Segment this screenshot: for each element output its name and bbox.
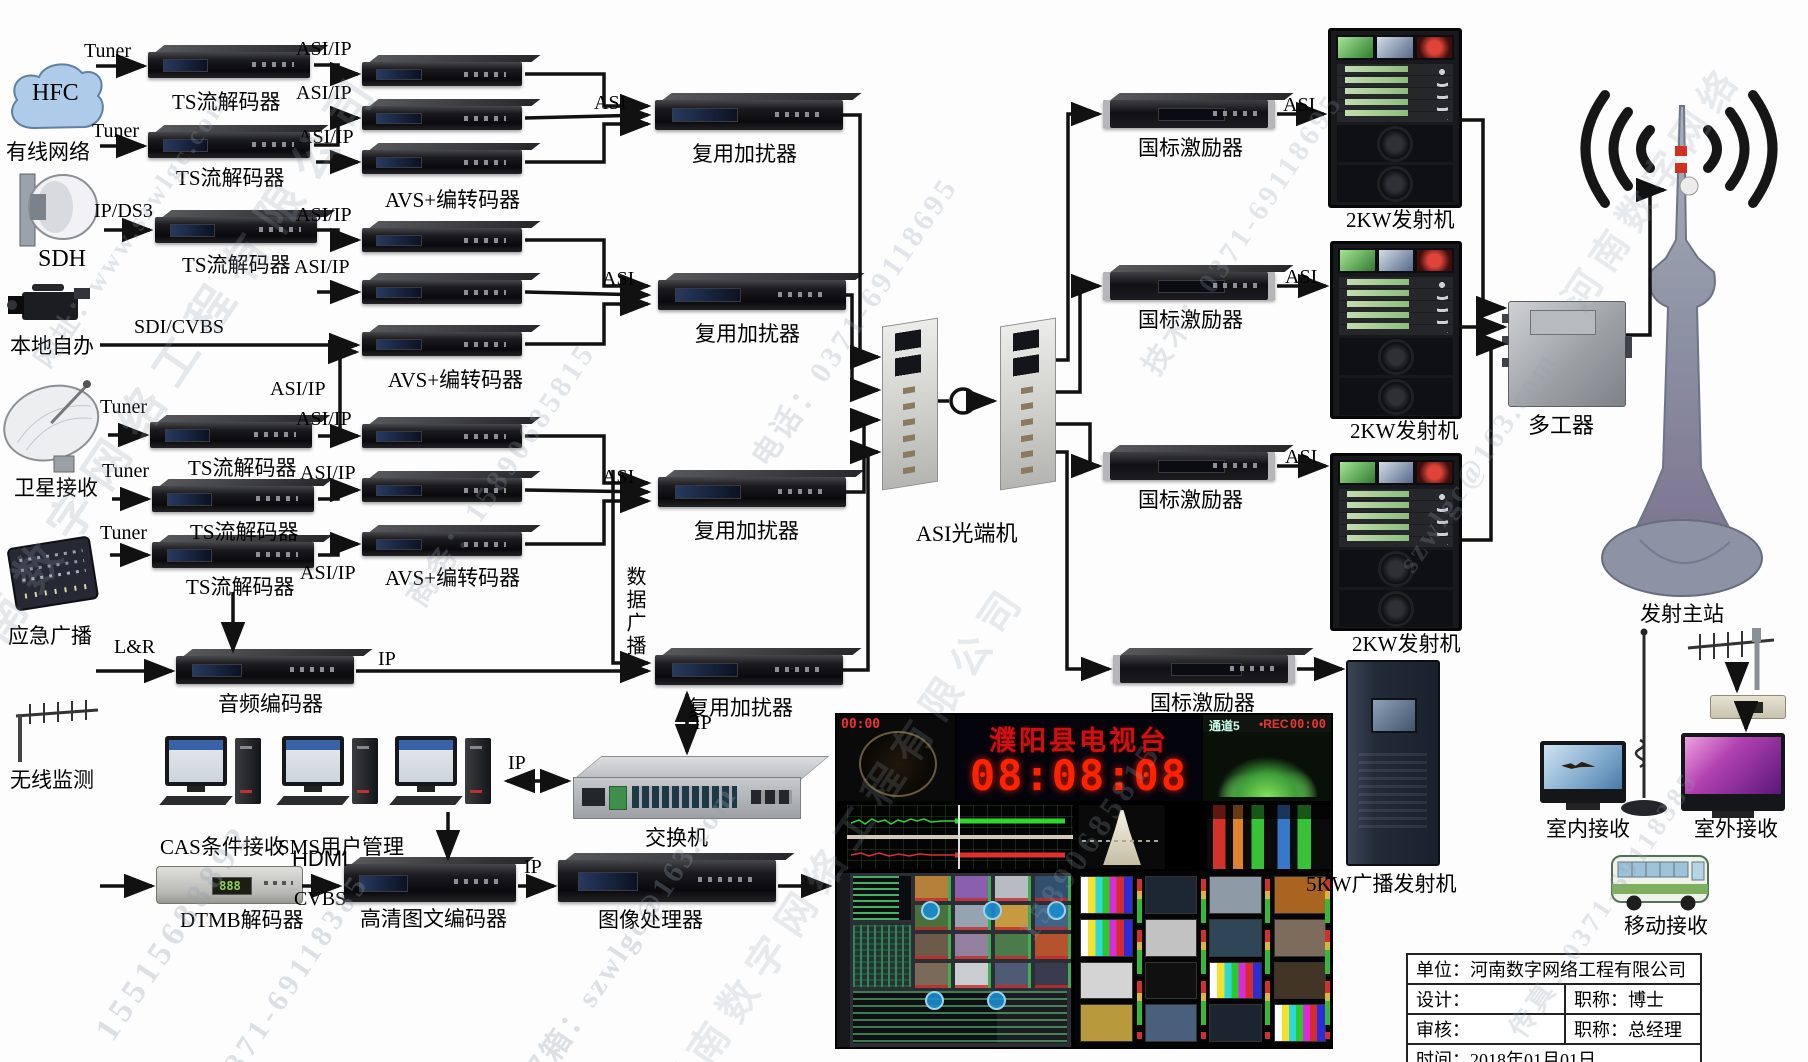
image-processor	[558, 860, 776, 902]
video-thumbnail	[915, 963, 951, 988]
cabinet-screen	[1371, 698, 1416, 732]
switch-terminal-block	[609, 786, 627, 810]
selection-dot	[983, 901, 1002, 920]
table-review-title: 职称：总经理	[1565, 1014, 1701, 1044]
video-thumbnail	[1035, 963, 1071, 988]
tx-2kw-label-3: 2KW发射机	[1352, 628, 1461, 658]
wireless-monitor-label: 无线监测	[10, 764, 94, 794]
indoor-antenna-icon	[1621, 629, 1667, 817]
device-ts-decoder-2	[148, 132, 310, 158]
exciter-label-2: 国标激励器	[1138, 304, 1243, 334]
yagi-antenna-icon	[16, 700, 98, 762]
combiner-box	[1508, 301, 1626, 407]
avs-encoder-label-2: AVS+编转码器	[388, 364, 523, 394]
table-design-title: 职称：博士	[1565, 984, 1701, 1014]
rack-fan	[1337, 125, 1453, 162]
system-diagram: HFC 有线网络 SDH 本地自办 卫星接收 应急广播 无线监测 TS流解码器 …	[0, 0, 1808, 1062]
emergency-label: 应急广播	[8, 620, 92, 650]
multiview-cell	[1275, 920, 1326, 956]
ts-decoder-label-6: TS流解码器	[186, 571, 295, 601]
indoor-tv	[1540, 741, 1626, 803]
device-avs-encoder-1	[362, 62, 522, 86]
multiview-cell	[1146, 877, 1197, 913]
tv-screen	[1544, 745, 1622, 789]
monitor-screen	[1685, 737, 1781, 794]
device-exciter-1	[1103, 100, 1275, 128]
device-ts-decoder-5	[152, 486, 314, 512]
device-mux-scrambler-2	[658, 280, 846, 310]
conn-asi-ip-9: ASI/IP	[300, 562, 356, 585]
front-display	[163, 59, 209, 71]
combiner-output-port	[1625, 337, 1632, 358]
multiview-cell	[1210, 1005, 1261, 1041]
exciter-label-4: 国标激励器	[1150, 687, 1255, 717]
conn-cvbs: CVBS	[294, 888, 346, 911]
app-thumb-grid	[915, 876, 1071, 988]
optical-ports	[895, 329, 921, 379]
app-file-list	[853, 876, 911, 920]
video-thumbnail	[1035, 876, 1071, 901]
mux-label-3: 复用加扰器	[694, 515, 799, 545]
device-exciter-2	[1103, 272, 1275, 300]
exciter-label-1: 国标激励器	[1138, 132, 1243, 162]
radio-waves-icon	[1586, 95, 1773, 203]
conn-asi-4: ASI	[1283, 94, 1315, 117]
conn-sdi-cvbs: SDI/CVBS	[134, 316, 224, 339]
satellite-label: 卫星接收	[14, 472, 98, 502]
sdh-label: SDH	[38, 246, 86, 273]
indoor-rx-label: 室内接收	[1546, 813, 1630, 843]
rec-time: 00:00	[1290, 717, 1326, 731]
cable-network-label: 有线网络	[6, 136, 90, 166]
conn-asi-ip-5: ASI/IP	[294, 256, 350, 279]
selection-dot	[987, 991, 1006, 1010]
ts-decoder-label-1: TS流解码器	[172, 86, 281, 116]
table-date: 时间：2018年01月01日	[1407, 1044, 1701, 1062]
conn-asi-1: ASI	[594, 92, 626, 115]
combiner-input-ports	[1502, 314, 1509, 372]
computer-tower	[235, 738, 261, 804]
stb-display	[212, 877, 252, 895]
multiview-cell	[1081, 1005, 1132, 1041]
table-design: 设计：	[1407, 984, 1565, 1014]
selection-dot	[921, 901, 940, 920]
device-avs-encoder-8	[362, 478, 522, 502]
conn-ip-2: IP	[694, 712, 712, 735]
conn-tuner-3: Tuner	[100, 396, 147, 419]
computer-monitor	[165, 736, 227, 786]
multiview-cell	[1210, 920, 1261, 956]
app-toolbar	[837, 873, 850, 1047]
conn-asi-6: ASI	[1285, 446, 1317, 469]
device-mux-scrambler-3	[658, 477, 846, 507]
device-mux-scrambler-4	[655, 655, 843, 685]
multiview-cell	[1275, 1005, 1326, 1041]
video-thumbnail	[915, 934, 951, 959]
conn-asi-ip-7: ASI/IP	[296, 408, 352, 431]
conn-ip-1: IP	[378, 648, 396, 671]
avs-encoder-label-3: AVS+编转码器	[385, 562, 520, 592]
watermark-text: 河南数字网络	[1546, 50, 1753, 320]
audio-mixer-icon	[7, 537, 98, 611]
audio-encoder-label: 音频编码器	[218, 688, 323, 718]
optical-terminal-rx	[1000, 318, 1056, 491]
table-unit: 单位：河南数字网络工程有限公司	[1407, 954, 1701, 984]
main-station-label: 发射主站	[1640, 598, 1724, 628]
outdoor-stb	[1710, 695, 1786, 719]
switch-ethernet-ports	[632, 786, 737, 808]
stb-buttons	[264, 881, 293, 885]
monitor-wall: 00:00 濮阳县电视台 08:08:08 通道5 •REC 00:00	[835, 713, 1333, 1049]
tx-5kw-label: 5KW广播发射机	[1306, 868, 1457, 898]
microwave-dish-icon	[20, 174, 97, 246]
video-thumbnail	[995, 963, 1031, 988]
digital-clock: 08:08:08	[957, 751, 1201, 800]
device-avs-encoder-7	[362, 424, 522, 448]
computer-workstation	[395, 736, 495, 808]
device-audio-encoder	[176, 656, 354, 684]
conn-data-broadcast: 数据广播	[620, 566, 649, 658]
front-buttons	[252, 62, 294, 67]
spectrum-peak	[1103, 810, 1141, 865]
hd-graphics-encoder	[344, 864, 516, 902]
cabinet-5kw-transmitter	[1346, 660, 1440, 866]
video-thumbnail	[1035, 934, 1071, 959]
dtmb-label: DTMB解码器	[180, 904, 304, 934]
satellite-dish-icon	[0, 373, 110, 472]
outdoor-rx-label: 室外接收	[1694, 813, 1778, 843]
app-status-grid	[853, 925, 911, 987]
device-avs-encoder-5	[362, 280, 522, 304]
device-avs-encoder-2	[362, 106, 522, 130]
combiner-plate	[1530, 310, 1596, 335]
conn-ip-4: IP	[524, 856, 542, 879]
multiview-cell	[1275, 963, 1326, 999]
channel-name: 通道5	[1209, 717, 1240, 734]
conn-hdmi: HDMI	[292, 846, 348, 872]
wall-app-window	[837, 873, 1071, 1047]
spectrum-header: 通道5 •REC 00:00	[1203, 715, 1331, 732]
wall-multiview	[1075, 871, 1331, 1047]
multiview-cell	[1081, 963, 1132, 999]
device-mux-scrambler-1	[655, 100, 843, 130]
multiview-cell	[1146, 963, 1197, 999]
multiview-cell	[1081, 920, 1132, 956]
network-switch	[573, 756, 801, 820]
conn-tuner-4: Tuner	[102, 460, 149, 483]
video-thumbnail	[995, 934, 1031, 959]
rack-2kw-transmitter-2	[1330, 241, 1462, 419]
device-avs-encoder-6	[362, 332, 522, 356]
device-ts-decoder-1	[148, 52, 310, 78]
wall-clock-panel: 00:00	[837, 715, 955, 801]
video-thumbnail	[915, 876, 951, 901]
ts-decoder-label-4: TS流解码器	[188, 452, 297, 482]
audio-meter-column	[1201, 879, 1206, 1039]
conn-asi-3: ASI	[602, 466, 634, 489]
switch-sfp-ports	[751, 790, 792, 804]
video-thumbnail	[955, 963, 991, 988]
avs-encoder-label-1: AVS+编转码器	[385, 184, 520, 214]
exciter-label-3: 国标激励器	[1138, 484, 1243, 514]
conn-ip-ds3: IP/DS3	[94, 200, 153, 223]
optical-to-exciter-lines	[1056, 114, 1109, 669]
optical-terminal-tx	[882, 318, 938, 491]
video-thumbnail	[955, 876, 991, 901]
multiview-cell	[1146, 1005, 1197, 1041]
selection-dot	[1047, 901, 1066, 920]
video-thumbnail	[955, 934, 991, 959]
bus-icon	[1612, 856, 1708, 911]
hfc-label: HFC	[32, 80, 79, 107]
selection-dot	[925, 991, 944, 1010]
title-block-table: 单位：河南数字网络工程有限公司 设计： 职称：博士 审核： 职称：总经理 时间：…	[1406, 953, 1702, 1062]
conn-asi-ip-8: ASI/IP	[300, 462, 356, 485]
multiview-cell	[1210, 877, 1261, 913]
conn-ip-3: IP	[508, 752, 526, 775]
outdoor-yagi-icon	[1688, 628, 1774, 690]
image-processor-label: 图像处理器	[598, 904, 703, 934]
audio-meter-column	[1325, 879, 1330, 1039]
dtmb-stb	[156, 866, 303, 904]
multiview-cell	[1210, 963, 1261, 999]
ts-decoder-label-2: TS流解码器	[176, 162, 285, 192]
rack-screens	[1336, 35, 1454, 60]
app-log-tables	[853, 991, 1067, 1043]
device-avs-encoder-3	[362, 150, 522, 174]
conn-asi-ip-6: ASI/IP	[270, 378, 326, 401]
computer-cas	[165, 736, 265, 808]
conn-lr: L&R	[114, 636, 155, 659]
outdoor-monitor	[1681, 733, 1785, 811]
device-avs-encoder-9	[362, 532, 522, 556]
conn-asi-5: ASI	[1285, 266, 1317, 289]
device-avs-encoder-4	[362, 228, 522, 252]
wall-spectrum-panel: 通道5 •REC 00:00	[1203, 715, 1331, 801]
switch-power-socket	[582, 788, 605, 806]
rack-fan	[1337, 165, 1453, 202]
rack-2kw-transmitter-1	[1328, 28, 1462, 208]
tx-2kw-label-2: 2KW发射机	[1350, 415, 1459, 445]
device-exciter-4	[1113, 655, 1295, 683]
spectrum-blob	[1213, 736, 1321, 797]
conn-tuner-2: Tuner	[92, 120, 139, 143]
device-ts-decoder-3	[155, 217, 317, 243]
rec-indicator: •REC	[1259, 717, 1289, 731]
video-thumbnail	[995, 876, 1031, 901]
device-exciter-3	[1103, 452, 1275, 480]
conn-asi-ip-1: ASI/IP	[296, 38, 352, 61]
satellite-dish-base	[54, 456, 74, 472]
hd-encoder-label: 高清图文编码器	[360, 903, 507, 933]
mux-label-1: 复用加扰器	[692, 138, 797, 168]
switch-label: 交换机	[645, 822, 708, 852]
wall-rgb-bars-panel	[1207, 805, 1331, 869]
rack-meters	[1337, 64, 1453, 122]
tx-2kw-label-1: 2KW发射机	[1346, 204, 1455, 234]
table-review: 审核：	[1407, 1014, 1565, 1044]
conn-asi-ip-2: ASI/IP	[296, 82, 352, 105]
asi-optical-label: ASI光端机	[916, 516, 1017, 548]
optical-connectors	[903, 386, 915, 476]
camera-icon	[7, 284, 90, 320]
local-program-label: 本地自办	[10, 330, 94, 360]
wall-corner-time: 00:00	[841, 717, 880, 732]
conn-tuner-1: Tuner	[84, 40, 131, 63]
multiview-cell	[1081, 877, 1132, 913]
computer-keyboard	[159, 796, 233, 805]
cabinet-vents	[1359, 753, 1427, 830]
combiner-label: 多工器	[1528, 408, 1594, 440]
wall-waveform-panel	[847, 805, 1073, 869]
mobile-rx-label: 移动接收	[1624, 910, 1708, 940]
wall-title-panel: 濮阳县电视台 08:08:08	[957, 715, 1201, 801]
cas-label: CAS条件接收	[160, 831, 285, 861]
analog-clock	[859, 731, 937, 797]
audio-meter-column	[1137, 879, 1142, 1039]
rack-2kw-transmitter-3	[1330, 453, 1462, 631]
audio-meter-column	[1265, 879, 1270, 1039]
conn-asi-ip-3: ASI/IP	[298, 126, 354, 149]
conn-asi-ip-4: ASI/IP	[296, 204, 352, 227]
wall-white-spectrum-panel	[1079, 805, 1165, 869]
computer-sms	[282, 736, 382, 808]
mux-label-2: 复用加扰器	[695, 318, 800, 348]
ts-decoder-label-3: TS流解码器	[182, 249, 291, 279]
ts-decoder-label-5: TS流解码器	[190, 516, 299, 546]
multiview-cell	[1146, 920, 1197, 956]
conn-asi-2: ASI	[602, 268, 634, 291]
device-ts-decoder-4	[150, 422, 312, 448]
conn-tuner-5: Tuner	[100, 522, 147, 545]
